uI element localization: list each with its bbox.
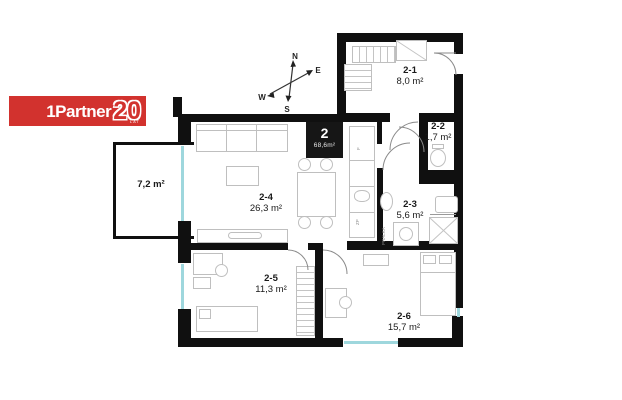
compass-e-label: E (315, 66, 321, 75)
floor-plan-page: 1Partner 20 LAT 7,2 m² (0, 0, 622, 400)
logo-brand: Partner (55, 102, 111, 121)
chair-2-6 (339, 296, 352, 309)
wall (178, 114, 191, 145)
door-arc-hall (390, 122, 418, 150)
window-room-2-6-bottom (344, 341, 398, 344)
wardrobe (396, 40, 427, 61)
kitchen-counter (349, 126, 375, 238)
kitchen-divider (349, 160, 375, 161)
wall (315, 250, 323, 338)
shelf-2-6 (363, 254, 389, 266)
wall (419, 170, 463, 184)
shower (429, 217, 458, 244)
wall (191, 243, 288, 250)
tv (228, 232, 262, 239)
blanket-line-2-6 (420, 272, 456, 273)
washing-machine-drum (399, 227, 413, 241)
room-label-2-3: 2-35,6 m² (397, 199, 424, 222)
window-room-2-5 (181, 264, 184, 309)
room-area: 1,7 m² (425, 132, 452, 143)
wall (308, 243, 323, 250)
kitchen-label-zp: ZP (355, 219, 360, 225)
room-area: 15,7 m² (388, 322, 420, 333)
sofa-divider (226, 125, 227, 151)
unit-total-area: 68,6m² (306, 142, 343, 149)
room-id: 2-1 (397, 65, 424, 76)
washer-label: PRALKA (381, 227, 386, 245)
door-arc-room-2-6 (323, 250, 347, 274)
logo-tagline: LAT (130, 119, 140, 124)
dining-chair (298, 216, 311, 229)
cabinet-2-5 (193, 277, 211, 289)
dining-table (297, 172, 336, 217)
room-label-2-5: 2-511,3 m² (255, 273, 287, 296)
logo-wordmark: 1Partner (46, 103, 111, 120)
room-area: 5,6 m² (397, 210, 424, 221)
compass-s-label: S (284, 105, 290, 114)
wall (178, 221, 191, 263)
dining-chair (320, 158, 333, 171)
pillow-2-6 (439, 255, 452, 264)
kitchen-label-f: F (356, 147, 361, 150)
room-label-2-2: 2-21,7 m² (425, 121, 452, 144)
wall (178, 338, 343, 347)
unit-number: 2 (306, 126, 343, 140)
bath-sink (435, 196, 458, 213)
dining-chair (298, 158, 311, 171)
wall (377, 122, 382, 144)
coffee-table (226, 166, 259, 186)
wall (454, 33, 463, 54)
room-id: 2-4 (250, 192, 282, 203)
wall (337, 113, 390, 122)
pillow-2-6 (423, 255, 436, 264)
stairs-center (296, 266, 315, 336)
room-id: 2-5 (255, 273, 287, 284)
room-id: 2-6 (388, 311, 420, 322)
kitchen-sink (354, 190, 370, 202)
entry-stairs-upper (352, 46, 396, 63)
sofa-divider (256, 125, 257, 151)
window-balcony-door (181, 146, 184, 221)
room-area: 11,3 m² (255, 284, 287, 295)
sofa (196, 124, 288, 152)
dining-chair (320, 216, 333, 229)
room-id: 2-3 (397, 199, 424, 210)
partner-logo-banner: 1Partner 20 LAT (9, 96, 146, 126)
kitchen-divider (349, 212, 375, 213)
toilet-2-2 (430, 149, 446, 167)
wall (178, 114, 338, 122)
compass-arrow-w (267, 93, 275, 99)
balcony-area-label: 7,2 m² (137, 179, 164, 190)
room-label-2-4: 2-426,3 m² (250, 192, 282, 215)
sofa-back-line (196, 130, 288, 131)
room-area: 26,3 m² (250, 203, 282, 214)
entrance-door-arc (434, 53, 456, 75)
compass-arrow-s (286, 96, 292, 103)
unit-number-badge: 2 68,6m² (306, 122, 343, 158)
room-area: 8,0 m² (397, 76, 424, 87)
kitchen-divider (349, 186, 375, 187)
room-label-2-1: 2-18,0 m² (397, 65, 424, 88)
compass-arrow-e (306, 70, 313, 76)
logo-prefix: 1 (46, 102, 55, 121)
room-id: 2-2 (425, 121, 452, 132)
entry-stairs-lower (344, 64, 372, 91)
pillow-2-5 (199, 309, 211, 319)
toilet-2-3 (380, 192, 393, 211)
room-label-2-6: 2-615,7 m² (388, 311, 420, 334)
chair-2-5 (215, 264, 228, 277)
compass-arrow-n (291, 60, 297, 67)
towel-rail (430, 214, 456, 215)
compass-rose: N E W S (258, 52, 321, 114)
door-arc-bath (383, 143, 410, 170)
wall (398, 338, 463, 347)
compass-n-label: N (292, 52, 298, 61)
compass-w-label: W (258, 93, 266, 102)
window-room-2-6-right (457, 308, 460, 317)
